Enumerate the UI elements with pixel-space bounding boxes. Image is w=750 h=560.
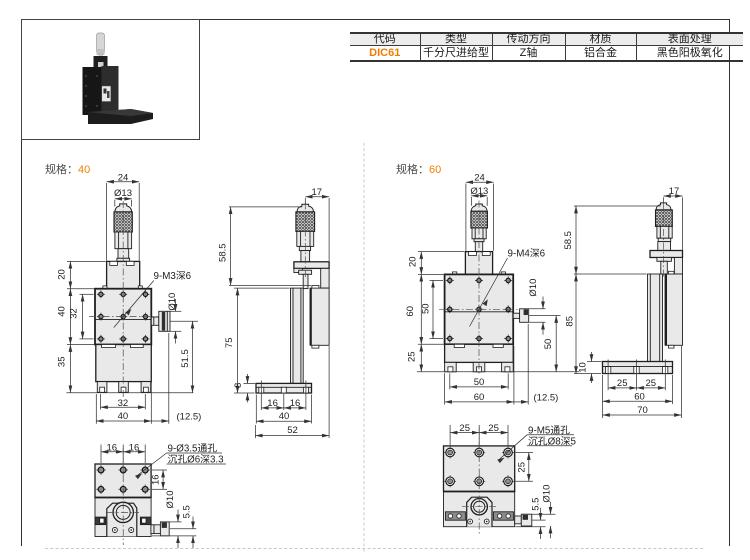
svg-text:51.5: 51.5 [180, 349, 191, 368]
svg-text:40: 40 [118, 411, 129, 422]
svg-text:25: 25 [646, 378, 657, 389]
svg-text:9-M4深6: 9-M4深6 [508, 248, 546, 260]
svg-text:10: 10 [578, 362, 589, 373]
svg-text:75: 75 [224, 338, 235, 349]
svg-text:8: 8 [233, 383, 244, 388]
svg-text:24: 24 [474, 172, 485, 183]
svg-text:32: 32 [69, 308, 80, 319]
svg-text:60: 60 [405, 306, 416, 317]
svg-text:35: 35 [57, 357, 68, 368]
svg-text:17: 17 [669, 186, 680, 197]
svg-text:25: 25 [406, 351, 417, 362]
svg-text:Ø10: Ø10 [542, 485, 553, 503]
svg-text:Ø13: Ø13 [114, 188, 132, 199]
svg-text:5.5: 5.5 [531, 498, 542, 511]
svg-text:Ø10: Ø10 [167, 293, 178, 311]
svg-text:52: 52 [287, 425, 298, 436]
svg-text:60: 60 [634, 391, 645, 402]
svg-text:40: 40 [279, 411, 290, 422]
svg-text:58.5: 58.5 [218, 243, 229, 262]
svg-text:50: 50 [420, 303, 431, 314]
svg-text:(12.5): (12.5) [177, 411, 202, 422]
svg-text:Ø13: Ø13 [470, 186, 488, 197]
svg-text:Ø10: Ø10 [528, 279, 539, 297]
svg-text:25: 25 [516, 462, 527, 473]
svg-text:20: 20 [407, 256, 418, 267]
svg-text:(12.5): (12.5) [534, 392, 559, 403]
svg-text:60: 60 [474, 392, 485, 403]
svg-text:16: 16 [150, 474, 161, 485]
svg-text:5.5: 5.5 [182, 505, 193, 518]
svg-text:25: 25 [617, 378, 628, 389]
svg-text:沉孔Ø6深3.3: 沉孔Ø6深3.3 [168, 453, 225, 466]
svg-text:40: 40 [57, 306, 68, 317]
svg-text:20: 20 [57, 269, 68, 280]
svg-text:16: 16 [267, 398, 278, 409]
svg-text:16: 16 [290, 398, 301, 409]
svg-text:85: 85 [564, 316, 575, 327]
svg-text:58.5: 58.5 [563, 231, 574, 250]
svg-text:50: 50 [543, 339, 554, 350]
svg-text:17: 17 [312, 187, 323, 198]
svg-text:9-M3深6: 9-M3深6 [154, 270, 192, 282]
svg-text:70: 70 [637, 405, 648, 416]
svg-text:Ø10: Ø10 [165, 491, 176, 509]
svg-text:沉孔Ø8深5: 沉孔Ø8深5 [528, 434, 576, 447]
